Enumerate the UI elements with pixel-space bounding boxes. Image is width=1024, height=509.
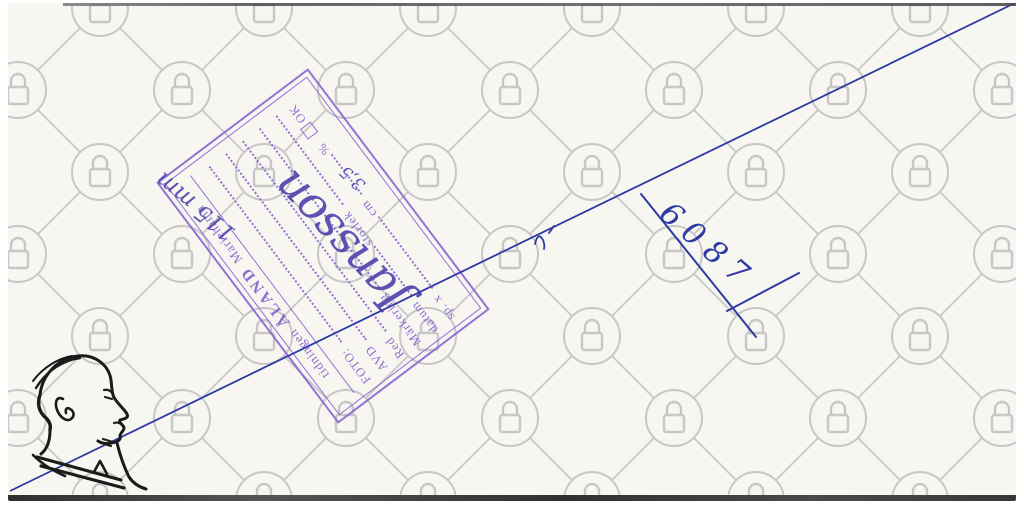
small-pen-mark — [535, 226, 554, 249]
scan-top-edge — [63, 3, 1016, 6]
scanned-photo-verso: { "stamp": { "title_pre": "tidningen", "… — [0, 0, 1024, 509]
man-profile-sketch — [20, 351, 162, 497]
scan-bottom-edge-shadow — [8, 495, 1016, 501]
paper-sheet: tidningen ÅLAND Mariehamn FOTO: AVD Red … — [8, 3, 1016, 497]
